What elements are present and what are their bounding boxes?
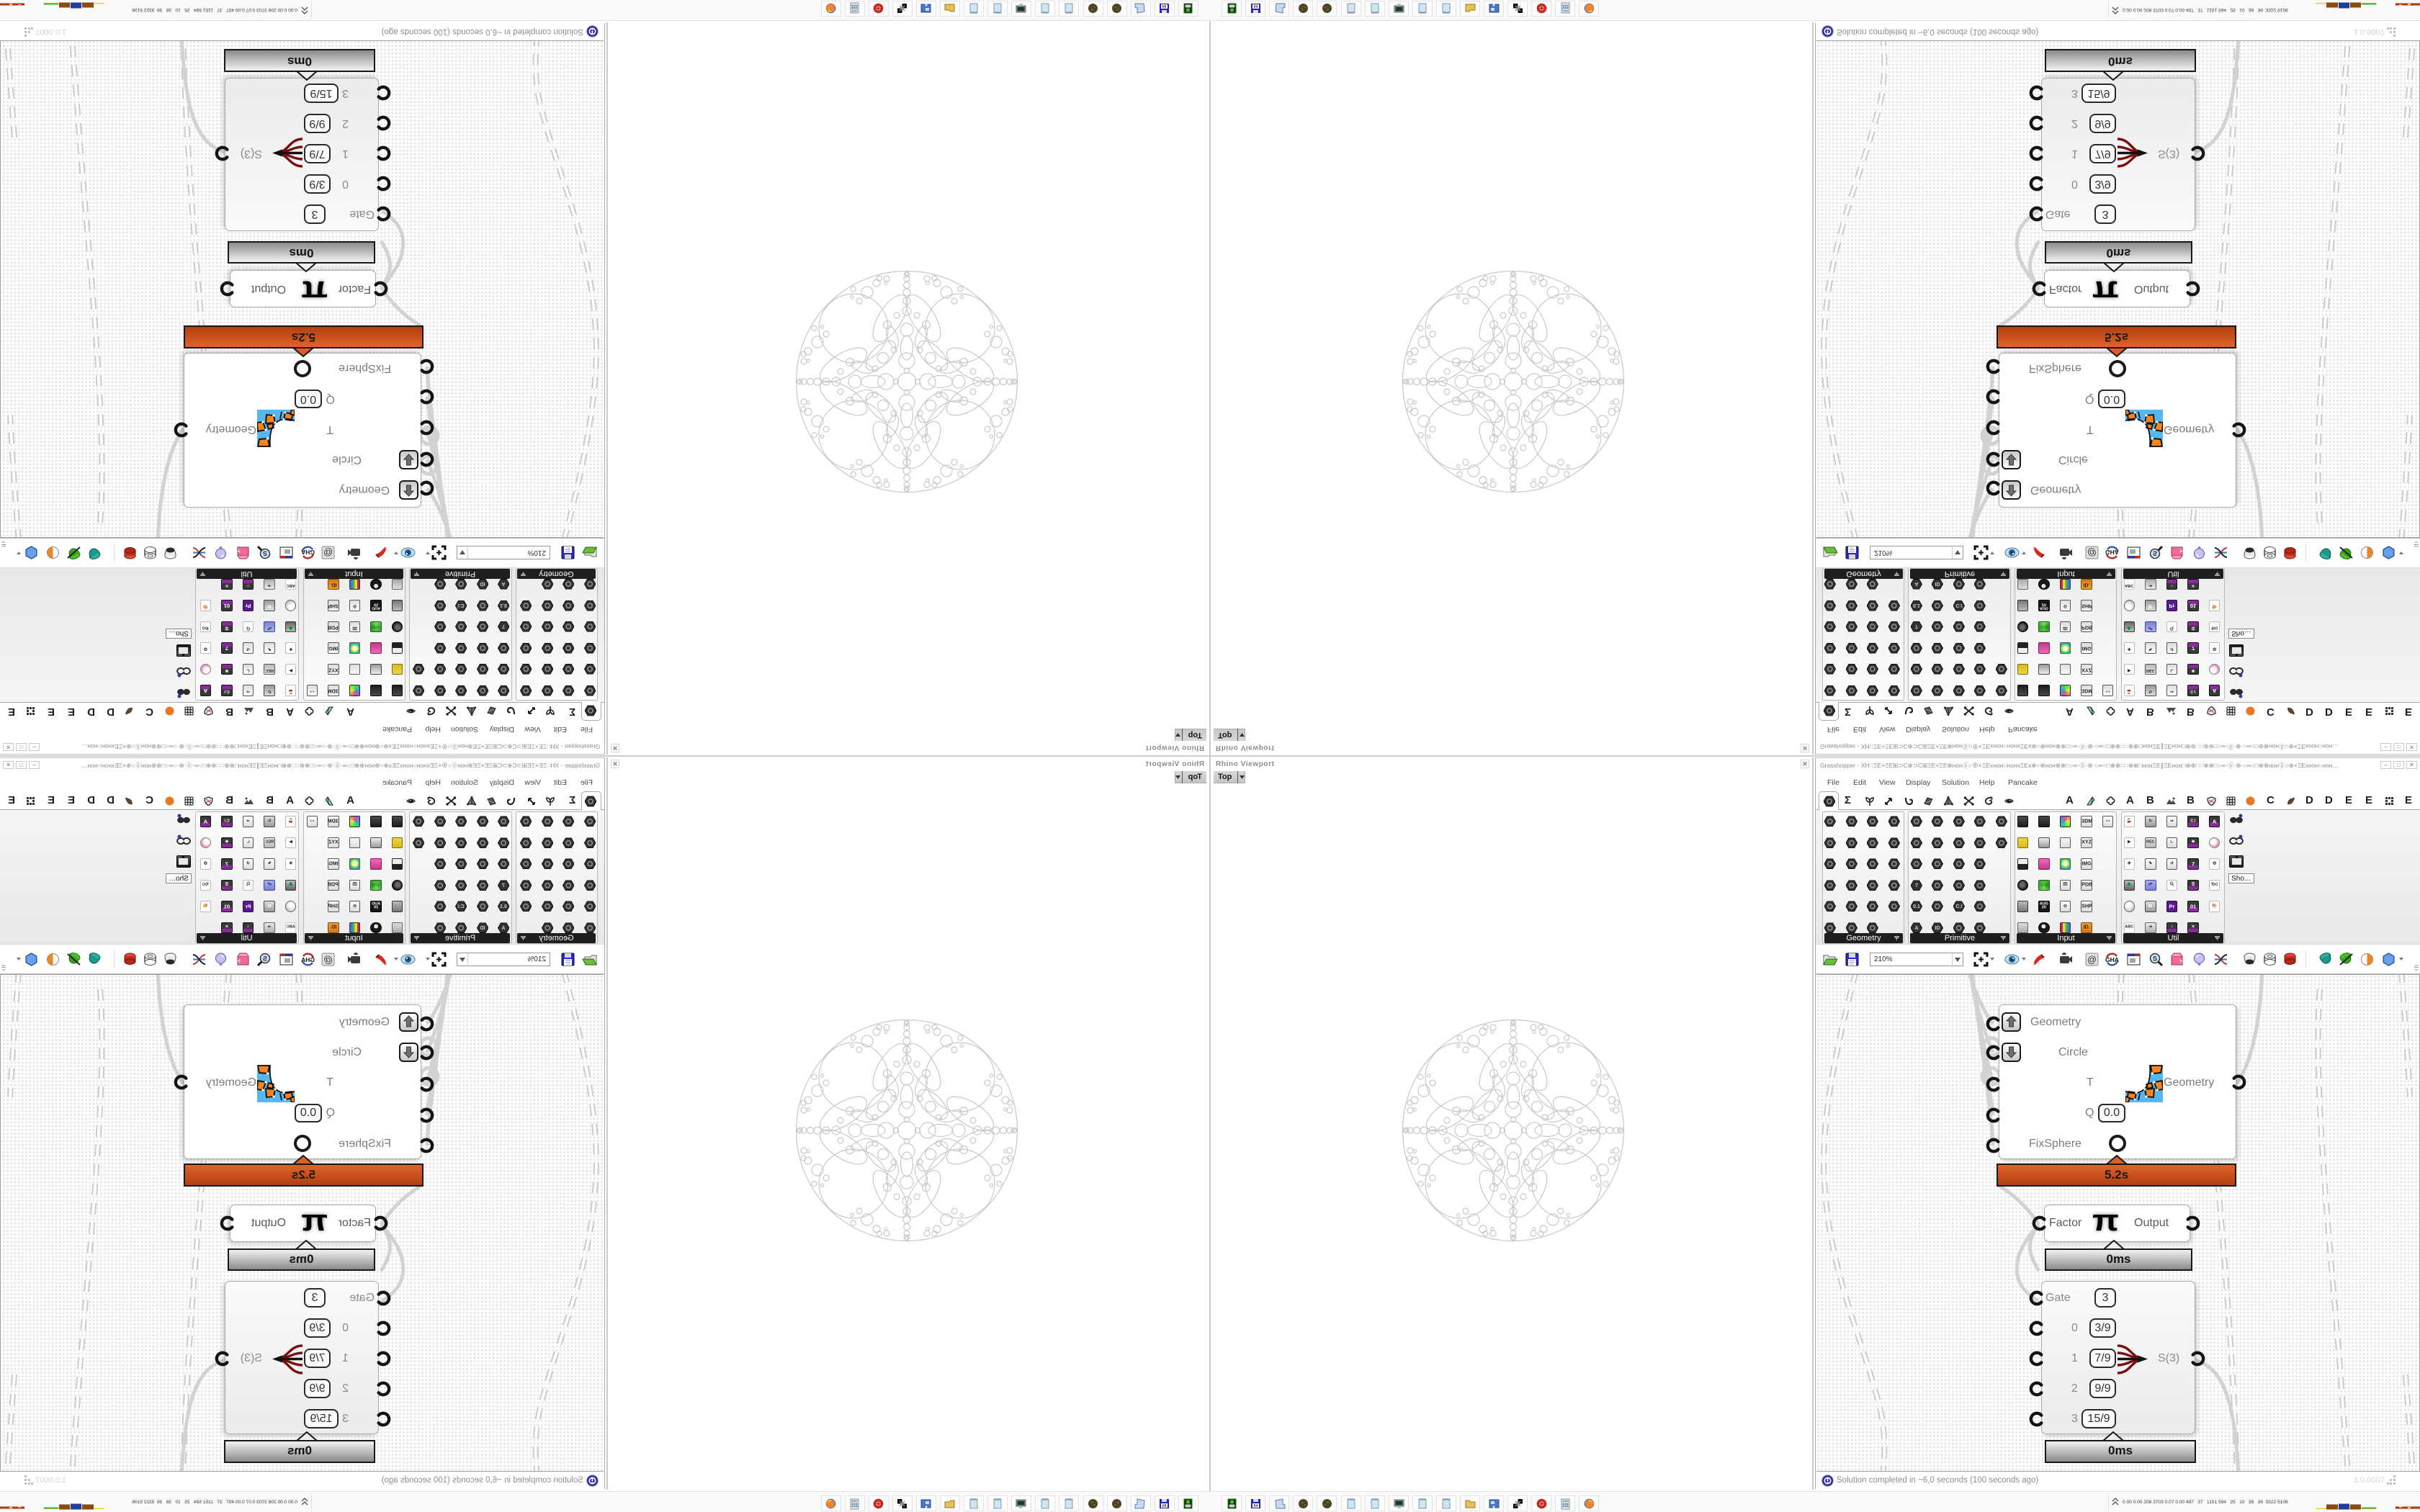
svg-text:C:/: C:/ <box>458 904 465 909</box>
svg-text:ID: ID <box>480 926 485 931</box>
svg-text:A: A <box>502 582 506 587</box>
svg-text:64: 64 <box>1254 4 1258 8</box>
svg-text:7: 7 <box>1915 624 1918 629</box>
svg-text:@: @ <box>323 954 333 965</box>
svg-text:C:/: C:/ <box>1955 904 1962 909</box>
svg-text:C:/: C:/ <box>458 603 465 608</box>
svg-text:GHA: GHA <box>2105 549 2119 556</box>
svg-text:7: 7 <box>1915 883 1918 888</box>
svg-text:ID: ID <box>1935 926 1940 931</box>
svg-text:0.1: 0.1 <box>1913 603 1920 608</box>
svg-text:0.1: 0.1 <box>501 904 508 909</box>
svg-text:S: S <box>2153 550 2157 557</box>
svg-text:@: @ <box>2087 547 2097 558</box>
svg-text:64: 64 <box>1162 1504 1167 1508</box>
svg-text:ID: ID <box>1935 582 1940 587</box>
svg-text:GHA: GHA <box>301 549 315 556</box>
svg-text:ID: ID <box>480 582 485 587</box>
svg-text:?: ? <box>238 960 241 965</box>
svg-text:C:/: C:/ <box>1955 603 1962 608</box>
svg-text:64: 64 <box>1254 1504 1258 1508</box>
svg-text:7: 7 <box>502 883 505 888</box>
svg-text:7: 7 <box>502 624 505 629</box>
svg-text:GHA: GHA <box>2105 956 2119 963</box>
svg-text:S: S <box>2153 955 2157 963</box>
svg-text:?: ? <box>2179 547 2182 552</box>
svg-text:A: A <box>1914 582 1918 587</box>
svg-text:64: 64 <box>1162 4 1167 8</box>
svg-text:?: ? <box>2179 960 2182 965</box>
svg-text:S: S <box>263 550 267 557</box>
svg-text:?: ? <box>238 547 241 552</box>
svg-text:S: S <box>263 955 267 963</box>
svg-text:A: A <box>502 926 506 931</box>
svg-text:GHA: GHA <box>301 956 315 963</box>
svg-text:0.1: 0.1 <box>1913 904 1920 909</box>
svg-text:@: @ <box>323 547 333 558</box>
svg-text:A: A <box>1914 926 1918 931</box>
svg-text:0.1: 0.1 <box>501 603 508 608</box>
svg-text:@: @ <box>2087 954 2097 965</box>
